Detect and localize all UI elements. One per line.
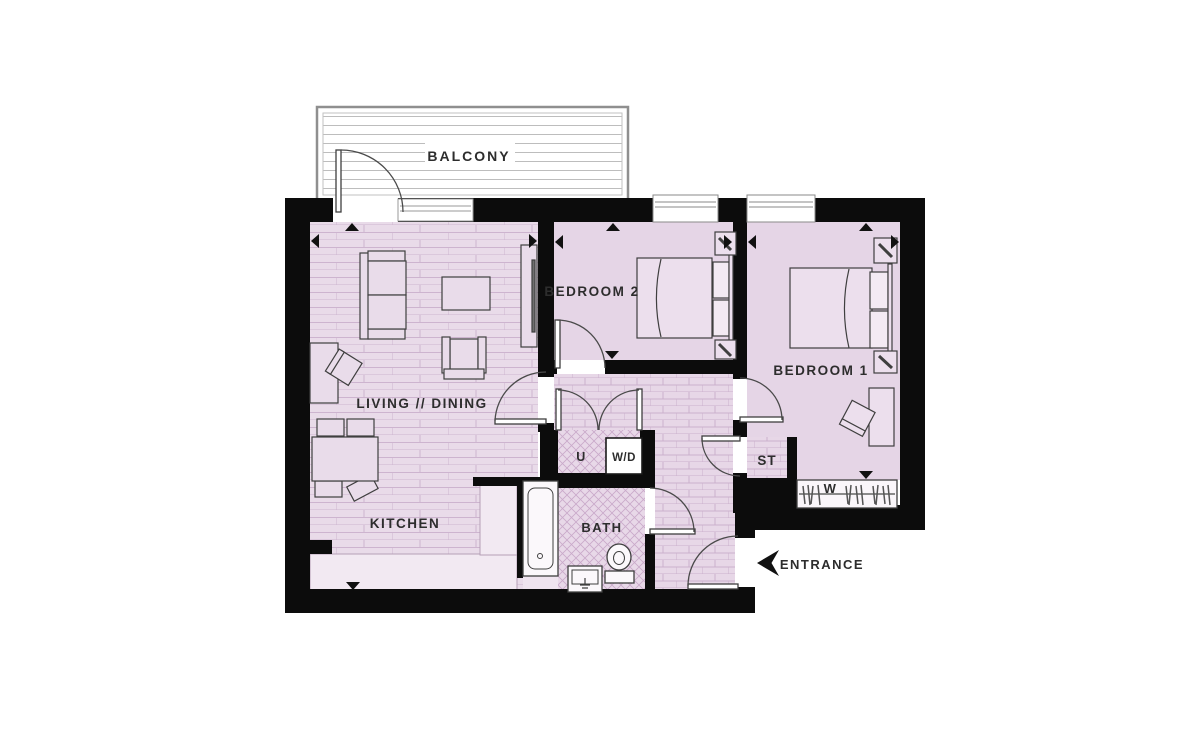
balcony-door-opening (333, 198, 398, 222)
balcony-window (398, 199, 473, 221)
wall-bedroom2-bottom (605, 360, 747, 374)
balcony-label: BALCONY (427, 148, 510, 164)
store-label: ST (757, 453, 776, 468)
tv-unit (521, 245, 537, 347)
bedroom1-door-opening (733, 379, 747, 420)
bedroom2-bed (637, 254, 733, 342)
kitchen-counter (310, 554, 517, 590)
entrance-door-opening (735, 538, 755, 587)
bath-door-opening (645, 488, 655, 534)
kitchen-label: KITCHEN (370, 516, 441, 531)
armchair (442, 337, 486, 379)
floorplan-page: BALCONY (0, 0, 1200, 733)
wall-entrance-lower (735, 587, 755, 613)
bedroom1-bed (790, 264, 892, 352)
wardrobe-label: W (824, 481, 837, 496)
living-door-opening (538, 377, 554, 423)
wall-right (900, 198, 925, 530)
kitchen-counter-column (480, 485, 517, 555)
hallway-floor-top (554, 374, 733, 430)
floorplan-drawing: BALCONY (0, 0, 1200, 733)
entrance-label: ENTRANCE (780, 557, 864, 572)
bedroom1-window (747, 195, 815, 222)
wall-bedroom1-seg3 (733, 473, 747, 513)
bathtub (523, 481, 558, 576)
bedroom1-nightstand-bottom (874, 351, 897, 373)
wall-bottom (285, 589, 755, 613)
wall-living-hall-upper (538, 222, 554, 377)
toilet (605, 544, 634, 583)
washer-dryer-label: W/D (612, 452, 636, 464)
sofa (360, 251, 406, 339)
entrance-marker: ENTRANCE (757, 550, 864, 576)
bedroom-2-label: BEDROOM 2 (544, 284, 639, 299)
dining-chair (315, 481, 342, 497)
dining-chair (317, 419, 344, 436)
entrance-arrow-icon (757, 550, 779, 576)
hallway-floor-main (655, 430, 735, 589)
wall-bottom-right (740, 505, 925, 530)
wardrobe-unit (797, 480, 897, 508)
dining-table (312, 437, 378, 481)
bedroom-1-label: BEDROOM 1 (773, 363, 868, 378)
dining-chair (347, 419, 374, 436)
wall-bath-hall-lower (645, 534, 655, 589)
sink-vanity (568, 566, 602, 592)
coffee-table (442, 277, 490, 310)
wall-kitchen-step (285, 540, 332, 554)
wall-store-right (787, 437, 797, 513)
utility-label: U (576, 450, 586, 464)
bedroom2-door-opening (557, 360, 605, 374)
wall-kitchen-bath-v (517, 485, 523, 578)
bath-label: BATH (581, 520, 622, 535)
bedroom2-window (653, 195, 718, 222)
living-dining-label: LIVING // DINING (356, 396, 487, 411)
store-door-opening (733, 437, 747, 473)
bedroom2-nightstand-bottom (715, 340, 736, 359)
